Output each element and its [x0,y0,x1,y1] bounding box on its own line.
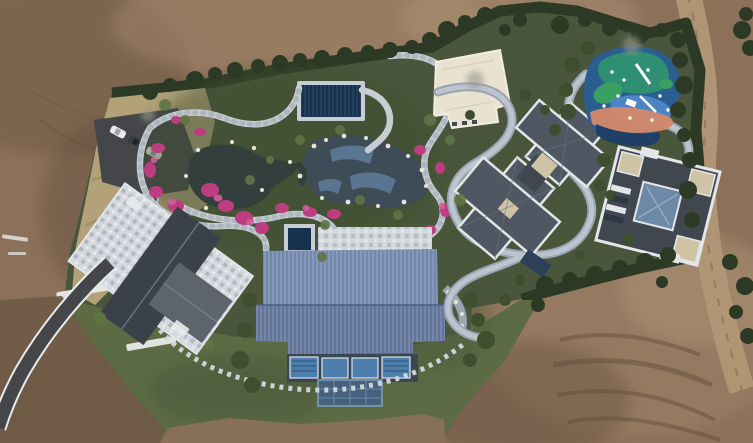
aerial-photo-stage [0,0,753,443]
paved-terrace-north [318,227,432,253]
court-pool [284,224,315,254]
covered-pool [297,81,365,121]
estate-aerial-photo [0,0,753,443]
